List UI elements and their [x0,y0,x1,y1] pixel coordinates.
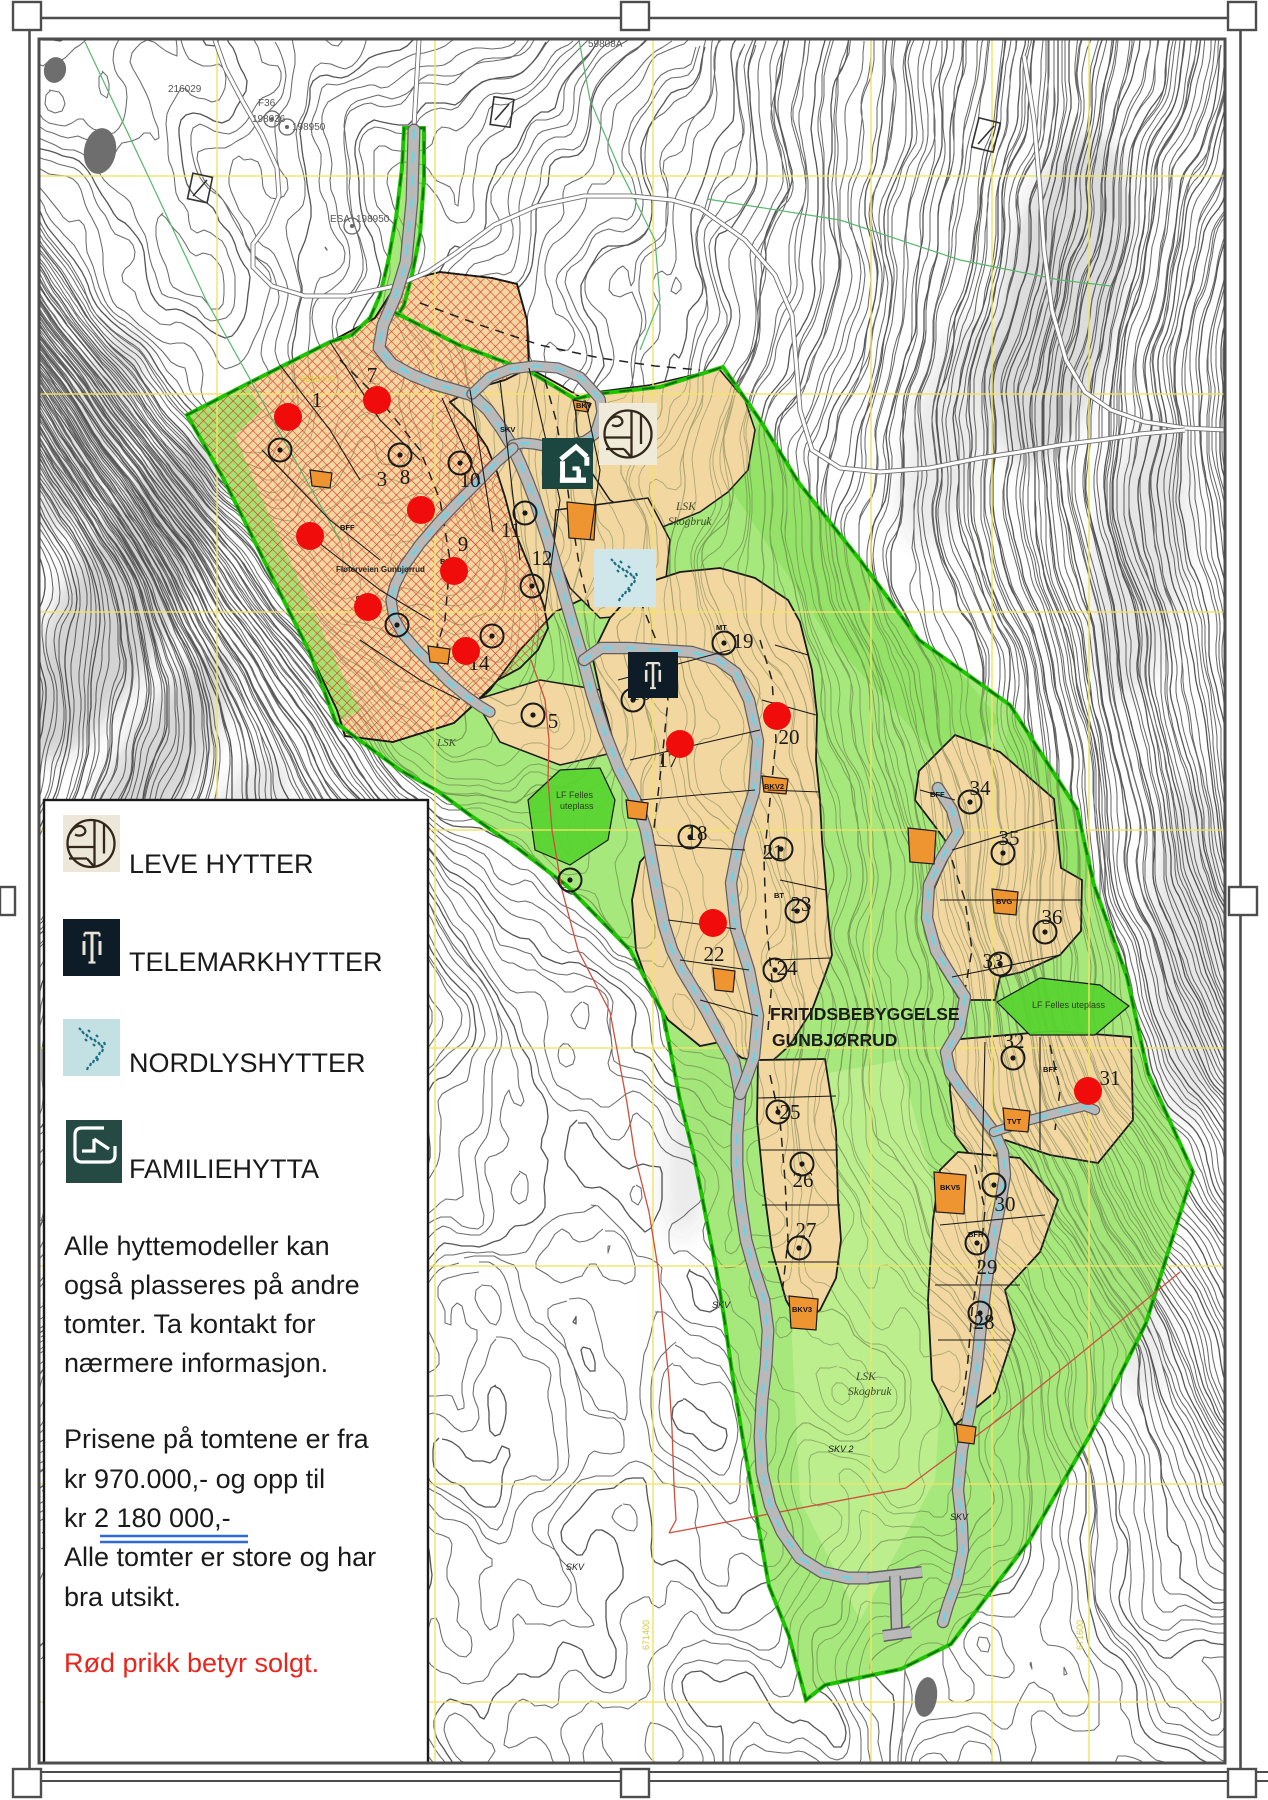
svg-text:671600: 671600 [1075,1620,1085,1650]
svg-text:7: 7 [367,363,378,387]
svg-text:216029: 216029 [168,84,202,95]
svg-text:SKV: SKV [500,425,515,434]
svg-text:198036: 198036 [252,114,286,125]
svg-text:Skogbruk: Skogbruk [668,516,712,528]
svg-text:LSK: LSK [855,1371,877,1383]
svg-text:NORDLYSHYTTER: NORDLYSHYTTER [129,1048,366,1078]
svg-text:5: 5 [548,709,559,733]
svg-text:TELEMARKHYTTER: TELEMARKHYTTER [129,947,383,977]
svg-text:LEVE HYTTER: LEVE HYTTER [129,849,314,879]
svg-text:Alle tomter er store og har: Alle tomter er store og har [64,1542,376,1572]
svg-text:BKV5: BKV5 [940,1183,960,1192]
svg-text:SKV: SKV [566,1562,585,1572]
svg-text:BFF: BFF [930,790,945,799]
svg-text:GUNBJØRRUD: GUNBJØRRUD [772,1030,897,1050]
svg-text:LSK: LSK [436,737,457,749]
svg-text:Rød prikk betyr solgt.: Rød prikk betyr solgt. [64,1648,319,1678]
svg-text:BFF: BFF [340,523,355,532]
svg-text:også plasseres på andre: også plasseres på andre [64,1270,360,1300]
svg-text:BVG: BVG [996,897,1012,906]
svg-text:LF Felles uteplass: LF Felles uteplass [1032,1000,1106,1010]
svg-text:BKV2: BKV2 [764,782,784,791]
svg-text:kr 2 180 000,-: kr 2 180 000,- [64,1503,231,1533]
svg-text:BT: BT [774,891,784,900]
svg-text:kr 970.000,- og opp til: kr 970.000,- og opp til [64,1464,325,1494]
svg-text:SKV 2: SKV 2 [828,1444,854,1454]
svg-text:12: 12 [532,546,553,570]
svg-text:6616400: 6616400 [300,374,335,384]
svg-text:nærmere informasjon.: nærmere informasjon. [64,1348,328,1378]
svg-text:Fløterveien Gunbjørrud: Fløterveien Gunbjørrud [336,565,425,574]
svg-text:59808A: 59808A [588,39,623,50]
svg-text:198950: 198950 [356,214,390,225]
svg-text:SKV: SKV [950,1512,969,1522]
svg-text:35: 35 [999,826,1020,850]
svg-text:bra utsikt.: bra utsikt. [64,1582,181,1612]
svg-text:8: 8 [400,465,411,489]
svg-text:MT: MT [716,623,727,632]
svg-text:FRITIDSBEBYGGELSE: FRITIDSBEBYGGELSE [770,1004,960,1024]
svg-text:BKV3: BKV3 [792,1305,812,1314]
svg-text:BFF: BFF [968,1230,983,1239]
svg-text:Skogbruk: Skogbruk [848,1386,892,1398]
svg-text:Prisene på tomtene er fra: Prisene på tomtene er fra [64,1424,370,1454]
svg-text:36: 36 [1042,905,1063,929]
svg-text:22: 22 [704,942,725,966]
svg-text:F36: F36 [258,98,276,109]
svg-text:BKV: BKV [576,401,592,410]
svg-text:FAMILIEHYTTA: FAMILIEHYTTA [129,1154,319,1184]
svg-text:TVT: TVT [1007,1117,1022,1126]
svg-text:1: 1 [312,388,323,412]
svg-text:LF Felles: LF Felles [556,790,594,800]
svg-text:10: 10 [460,468,481,492]
svg-text:SKV: SKV [712,1300,731,1310]
svg-text:LSK: LSK [675,501,697,513]
svg-text:671400: 671400 [641,1620,651,1650]
svg-text:Alle hyttemodeller kan: Alle hyttemodeller kan [64,1231,330,1261]
svg-text:9: 9 [458,532,469,556]
svg-text:31: 31 [1100,1066,1121,1090]
svg-text:BFF: BFF [1043,1065,1058,1074]
svg-text:3: 3 [377,467,388,491]
svg-text:tomter. Ta kontakt for: tomter. Ta kontakt for [64,1309,316,1339]
svg-text:198950: 198950 [292,122,326,133]
svg-text:uteplass: uteplass [560,801,594,811]
svg-text:29: 29 [977,1255,998,1279]
